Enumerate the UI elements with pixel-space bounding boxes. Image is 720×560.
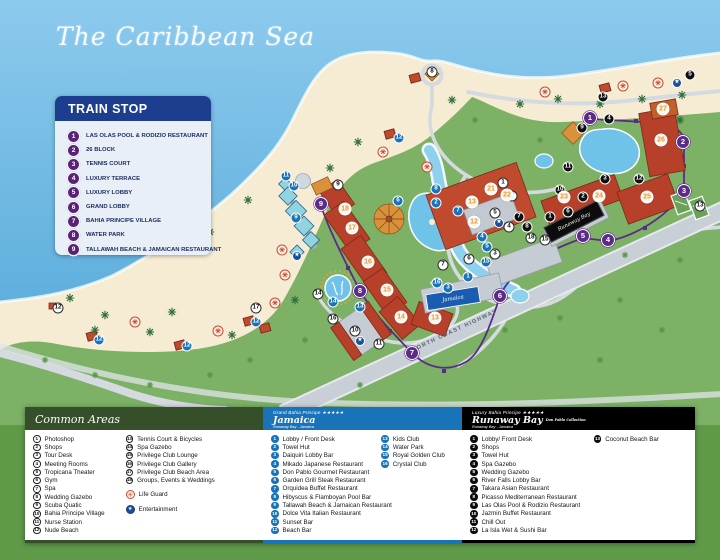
building-number-marker: 18: [339, 203, 352, 216]
legend-item: 9Las Olas Pool & Rodizio Restaurant: [470, 501, 594, 509]
legend-item-number: 8: [33, 493, 41, 501]
legend-item: 5Tropicana Theater: [33, 468, 126, 476]
legend-item-number: 8: [271, 493, 279, 501]
runaway-bay-footer-strip: [462, 540, 695, 543]
legend-item: 4Mikado Japanese Restaurant: [271, 460, 381, 468]
jamaica-marker: 7: [453, 206, 464, 217]
legend-item-label: Las Olas Pool & Rodizio Restaurant: [482, 502, 581, 509]
train-stop-marker: 6: [493, 289, 507, 303]
train-stop-marker: 7: [405, 346, 419, 360]
entertainment-icon: ★: [126, 505, 135, 514]
legend-item-number: 12: [470, 527, 478, 535]
jamaica-header: Grand Bahia Principe ★★★★★ Jamaica Runaw…: [263, 407, 462, 430]
jamaica-marker: 13: [355, 302, 366, 313]
legend-item: 5Don Pablo Gourmet Restaurant: [271, 468, 381, 476]
legend-item: 8Picasso Mediterranean Restaurant: [470, 493, 594, 501]
legend-item: 15Privilege Club Lounge: [126, 452, 259, 460]
legend-item: 11Nurse Station: [33, 518, 126, 526]
jamaica-footer-strip: [263, 540, 462, 543]
legend-item-number: 10: [271, 510, 279, 518]
common-area-marker: 11: [374, 339, 385, 350]
life-guard-icon: ✳: [130, 317, 141, 328]
legend-item-label: Lobby/ Front Desk: [482, 436, 533, 443]
jamaica-marker: 12: [182, 341, 193, 352]
life-guard-icon: ✳: [213, 326, 224, 337]
legend-item-number: 12: [271, 527, 279, 535]
train-stop-marker: 5: [576, 229, 590, 243]
legend-item-number: 1: [33, 435, 41, 443]
legend-item-label: Nude Beach: [45, 527, 79, 534]
legend-item-number: 8: [470, 493, 478, 501]
common-area-marker: 5: [490, 208, 501, 219]
legend-item: 4Spa Gazebo: [470, 460, 594, 468]
jamaica-marker: 12: [394, 133, 405, 144]
legend-item: 6River Falls Lobby Bar: [470, 476, 594, 484]
common-area-marker: 6: [464, 254, 475, 265]
life-guard-icon: ✳: [653, 78, 664, 89]
legend-item: 13Coconut Beach Bar: [594, 435, 691, 443]
jamaica-marker: 9: [291, 213, 302, 224]
jamaica-marker: 1: [463, 272, 474, 283]
legend-item: 12La Isla Wet & Sushi Bar: [470, 526, 594, 534]
legend-item-entertainment: ★Entertainment: [126, 505, 259, 513]
legend-item: 1Photoshop: [33, 435, 126, 443]
legend-item-number: 11: [271, 518, 279, 526]
train-stop-item: 8WATER PARK: [67, 228, 205, 242]
legend-item-number: 5: [33, 469, 41, 477]
jamaica-marker: 11: [281, 171, 292, 182]
legend-item-number: 6: [33, 477, 41, 485]
legend-item-number: 3: [470, 452, 478, 460]
jamaica-name: Jamaica: [273, 416, 462, 426]
building-number-marker: 24: [593, 190, 606, 203]
legend-section-jamaica: Grand Bahia Principe ★★★★★ Jamaica Runaw…: [263, 407, 462, 543]
legend-item-label: Tallawah Beach & Jamaican Restaurant: [283, 502, 392, 509]
legend-item: 4Meeting Rooms: [33, 460, 126, 468]
runaway-bay-marker: 2: [578, 192, 589, 203]
legend-item-label: Orquidea Buffet Restaurant: [283, 485, 358, 492]
jamaica-marker: 12: [94, 335, 105, 346]
runaway-bay-marker: 5: [685, 70, 696, 81]
legend-item-label: Privilege Club Gallery: [137, 461, 197, 468]
legend-item: 9Scuba Quatic: [33, 501, 126, 509]
legend-item-number: 15: [126, 452, 134, 460]
legend-item-number: 6: [271, 477, 279, 485]
train-stop-legend: TRAIN STOP 1LAS OLAS POOL & RODIZIO REST…: [55, 96, 211, 255]
legend-item-number: 2: [271, 444, 279, 452]
life-guard-icon: ✳: [277, 245, 288, 256]
legend-item-number: 4: [271, 460, 279, 468]
legend-item-label: Takara Asian Restaurant: [482, 485, 549, 492]
train-stop-number: 5: [67, 186, 80, 199]
building-number-marker: 14: [395, 311, 408, 324]
legend-item: 10Dolce Vita Italian Restaurant: [271, 510, 381, 518]
legend-item: 2Towel Hut: [271, 443, 381, 451]
legend-section-common-areas: Common Areas 1Photoshop2Shops3Tour Desk4…: [25, 407, 263, 543]
train-stop-label: TENNIS COURT: [86, 161, 130, 167]
train-stop-label: 26 BLOCK: [86, 147, 115, 153]
legend-item-label: Wedding Gazebo: [45, 494, 93, 501]
legend-item: 3Tour Desk: [33, 452, 126, 460]
legend-item-number: 18: [126, 477, 134, 485]
runaway-bay-marker: 6: [563, 207, 574, 218]
building-number-marker: 21: [485, 183, 498, 196]
legend-item-label: Daiquiri Lobby Bar: [283, 452, 334, 459]
legend-item-number: 4: [470, 460, 478, 468]
legend-item-number: 10: [470, 510, 478, 518]
legend-item: 5Wedding Gazebo: [470, 468, 594, 476]
life-guard-icon: ✳: [378, 147, 389, 158]
runaway-bay-marker: 13: [598, 92, 609, 103]
entertainment-icon: ★: [672, 78, 682, 88]
runaway-bay-marker: 11: [563, 162, 574, 173]
legend-item: 6Gym: [33, 476, 126, 484]
legend-item-number: 11: [470, 518, 478, 526]
legend-item-number: 1: [470, 435, 478, 443]
building-number-marker: 13: [466, 196, 479, 209]
legend-item-label: Privilege Club Beach Area: [137, 469, 209, 476]
entertainment-icon: ★: [494, 218, 504, 228]
legend-item: 8Hibyscus & Flamboyan Pool Bar: [271, 493, 381, 501]
train-stop-items: 1LAS OLAS POOL & RODIZIO RESTAURANT226 B…: [55, 121, 211, 257]
legend-item: 15Royal Golden Club: [381, 452, 458, 460]
jamaica-marker: 16: [432, 278, 443, 289]
train-stop-label: BAHIA PRINCIPE VILLAGE: [86, 218, 161, 224]
common-area-marker: 17: [251, 303, 262, 314]
legend-item-number: 2: [470, 444, 478, 452]
life-guard-icon: ✳: [270, 298, 281, 309]
common-area-marker: 15: [540, 235, 551, 246]
legend-item-number: 13: [126, 435, 134, 443]
train-stop-item: 5LUXURY LOBBY: [67, 186, 205, 200]
legend-item-number: 11: [33, 518, 41, 526]
legend-item: 12Beach Bar: [271, 526, 381, 534]
legend-item-number: 7: [271, 485, 279, 493]
common-area-marker: 7: [438, 260, 449, 271]
legend-item-label: Groups, Events & Weddings: [137, 477, 215, 484]
legend-item-label: Tropicana Theater: [45, 469, 95, 476]
legend-item-label: Tour Desk: [45, 452, 73, 459]
building-number-marker: 27: [657, 103, 670, 116]
runaway-bay-marker: 3: [600, 174, 611, 185]
train-stop-label: LAS OLAS POOL & RODIZIO RESTAURANT: [86, 133, 208, 139]
legend-item-number: 6: [470, 477, 478, 485]
legend-item: 2Shops: [470, 443, 594, 451]
legend-item: 13Kids Club: [381, 435, 458, 443]
common-area-marker: 18: [526, 233, 537, 244]
legend-item: 8Wedding Gazebo: [33, 493, 126, 501]
runaway-bay-marker: 7: [514, 212, 525, 223]
legend-item-label: Photoshop: [45, 436, 75, 443]
legend-item-label: Entertainment: [139, 506, 178, 513]
legend-item-number: 10: [33, 510, 41, 518]
legend-item: 7Orquidea Buffet Restaurant: [271, 485, 381, 493]
resort-map-page: The Caribbean Sea NORTH COAST HIGHWAY Ru…: [0, 0, 720, 560]
legend-item-number: 9: [271, 502, 279, 510]
legend-item: 11Sunset Bar: [271, 518, 381, 526]
legend-item-label: Sunset Bar: [283, 519, 314, 526]
common-area-marker: 4: [504, 222, 515, 233]
train-stop-number: 4: [67, 172, 80, 185]
legend-item-number: 12: [33, 527, 41, 535]
train-stop-number: 6: [67, 201, 80, 214]
runaway-bay-marker: 4: [604, 114, 615, 125]
legend-item: 10Jazmin Buffet Restaurant: [470, 510, 594, 518]
train-stop-item: 9TALLAWAH BEACH & JAMAICAN RESTAURANT: [67, 243, 205, 257]
legend-item-label: Mikado Japanese Restaurant: [283, 461, 364, 468]
common-area-marker: 12: [53, 303, 64, 314]
legend-item-label: Gym: [45, 477, 58, 484]
legend-item-label: Tennis Court & Bicycles: [137, 436, 202, 443]
runaway-bay-collection: Don Pablo Collection: [546, 418, 586, 422]
building-number-marker: 13: [429, 312, 442, 325]
common-area-marker: 3: [490, 249, 501, 260]
life-guard-icon: ✳: [126, 490, 135, 499]
legend-item-label: Jazmin Buffet Restaurant: [482, 510, 551, 517]
building-number-marker: 22: [501, 189, 514, 202]
legend-item: 6Garden Grill Steak Restaurant: [271, 476, 381, 484]
train-stop-number: 1: [67, 130, 80, 143]
legend-item-number: 9: [33, 502, 41, 510]
building-number-marker: 26: [655, 134, 668, 147]
legend-item-label: Coconut Beach Bar: [605, 436, 659, 443]
train-stop-item: 7BAHIA PRINCIPE VILLAGE: [67, 214, 205, 228]
common-areas-col1: 1Photoshop2Shops3Tour Desk4Meeting Rooms…: [33, 435, 126, 538]
jamaica-marker: 8: [431, 184, 442, 195]
train-stop-label: LUXURY LOBBY: [86, 190, 132, 196]
train-stop-item: 1LAS OLAS POOL & RODIZIO RESTAURANT: [67, 129, 205, 143]
runaway-bay-location: Runaway Bay - Jamaica: [472, 425, 695, 429]
jamaica-col1: 1Lobby / Front Desk2Towel Hut3Daiquiri L…: [271, 435, 381, 538]
legend-item-label: Life Guard: [139, 491, 168, 498]
building-number-marker: 25: [641, 191, 654, 204]
runaway-bay-col2: 13Coconut Beach Bar: [594, 435, 691, 538]
common-area-marker: 1: [498, 178, 509, 189]
common-areas-footer-strip: [25, 540, 263, 543]
train-stop-label: TALLAWAH BEACH & JAMAICAN RESTAURANT: [86, 247, 221, 253]
legend-item-label: Beach Bar: [283, 527, 312, 534]
building-number-marker: 16: [362, 256, 375, 269]
train-stop-item: 4LUXURY TERRACE: [67, 172, 205, 186]
legend-item-number: 16: [126, 460, 134, 468]
common-area-marker: 16: [328, 314, 339, 325]
legend-item: 1Lobby / Front Desk: [271, 435, 381, 443]
legend-item-number: 9: [470, 502, 478, 510]
common-areas-title: Common Areas: [35, 413, 263, 426]
legend-item: 16Privilege Club Gallery: [126, 460, 259, 468]
train-stop-label: GRAND LOBBY: [86, 204, 130, 210]
runaway-bay-marker: 8: [522, 222, 533, 233]
runaway-bay-marker: 9: [577, 123, 588, 134]
legend-item-number: 7: [33, 485, 41, 493]
train-stop-title: TRAIN STOP: [55, 96, 211, 121]
runaway-bay-col1: 1Lobby/ Front Desk2Shops3Towel Hut4Spa G…: [470, 435, 594, 538]
legend-item-label: Royal Golden Club: [393, 452, 445, 459]
legend-item: 16Crystal Club: [381, 460, 458, 468]
legend-item-number: 13: [381, 435, 389, 443]
legend-item-number: 4: [33, 460, 41, 468]
jamaica-marker: 2: [431, 198, 442, 209]
train-stop-item: 3TENNIS COURT: [67, 157, 205, 171]
legend-item-label: Kids Club: [393, 436, 419, 443]
legend-item-number: 2: [33, 444, 41, 452]
jamaica-marker: 3: [443, 283, 454, 294]
jamaica-marker: 12: [251, 317, 262, 328]
legend-item-label: Meeting Rooms: [45, 461, 88, 468]
legend-item: 13Tennis Court & Bicycles: [126, 435, 259, 443]
life-guard-icon: ✳: [540, 87, 551, 98]
legend-item-life-guard: ✳Life Guard: [126, 491, 259, 499]
runaway-bay-name: Runaway BayDon Pablo Collection: [472, 416, 695, 426]
legend-item: 18Groups, Events & Weddings: [126, 476, 259, 484]
legend-item-number: 15: [381, 452, 389, 460]
building-number-marker: 15: [381, 284, 394, 297]
legend-item: 14Spa Gazebo: [126, 443, 259, 451]
common-area-marker: 14: [313, 289, 324, 300]
jamaica-marker: 6: [393, 196, 404, 207]
legend-item-label: Privilege Club Lounge: [137, 452, 198, 459]
legend-item-label: Spa Gazebo: [137, 444, 171, 451]
legend-item-label: Scuba Quatic: [45, 502, 82, 509]
common-area-marker: 9: [333, 180, 344, 191]
life-guard-icon: ✳: [618, 81, 629, 92]
legend-item-label: Bahia Principe Village: [45, 510, 105, 517]
legend-item-number: 16: [381, 460, 389, 468]
legend-item-number: 1: [271, 435, 279, 443]
life-guard-icon: ✳: [280, 270, 291, 281]
train-stop-label: LUXURY TERRACE: [86, 176, 140, 182]
legend-item-number: 7: [470, 485, 478, 493]
legend-item: 12Nude Beach: [33, 526, 126, 534]
train-stop-marker: 4: [601, 233, 615, 247]
legend-item-number: 14: [126, 444, 134, 452]
legend-item-label: Lobby / Front Desk: [283, 436, 335, 443]
building-number-marker: 17: [346, 222, 359, 235]
legend-item-label: Shops: [482, 444, 500, 451]
legend-item: 3Daiquiri Lobby Bar: [271, 452, 381, 460]
legend-item: 14Water Park: [381, 443, 458, 451]
legend-item-number: 3: [271, 452, 279, 460]
common-areas-col2: 13Tennis Court & Bicycles14Spa Gazebo15P…: [126, 435, 259, 538]
legend-item-label: Don Pablo Gourmet Restaurant: [283, 469, 370, 476]
train-stop-item: 6GRAND LOBBY: [67, 200, 205, 214]
legend-item-label: La Isla Wet & Sushi Bar: [482, 527, 547, 534]
legend-item-number: 5: [470, 469, 478, 477]
legend-item-label: Hibyscus & Flamboyan Pool Bar: [283, 494, 372, 501]
legend-item: 2Shops: [33, 443, 126, 451]
common-area-marker: 13: [695, 201, 706, 212]
legend-item: 3Towel Hut: [470, 452, 594, 460]
common-areas-header: Common Areas: [25, 407, 263, 430]
legend-item: 1Lobby/ Front Desk: [470, 435, 594, 443]
train-stop-item: 226 BLOCK: [67, 143, 205, 157]
train-stop-number: 9: [67, 243, 80, 256]
legend-item-label: Towel Hut: [283, 444, 310, 451]
train-stop-marker: 3: [677, 184, 691, 198]
legend-item-label: Chill Out: [482, 519, 506, 526]
legend-item-number: 17: [126, 469, 134, 477]
legend-item-label: Crystal Club: [393, 461, 427, 468]
runaway-bay-marker: 12: [634, 174, 645, 185]
runaway-bay-header: Luxury Bahia Principe ★★★★★ Runaway BayD…: [462, 407, 695, 430]
legend-item-label: Water Park: [393, 444, 424, 451]
legend-item-label: Spa: [45, 485, 56, 492]
building-number-marker: 23: [558, 191, 571, 204]
legend-item-number: 3: [33, 452, 41, 460]
train-stop-marker: 2: [676, 135, 690, 149]
train-stop-number: 2: [67, 144, 80, 157]
legend-item-label: Shops: [45, 444, 63, 451]
legend-item-label: Dolce Vita Italian Restaurant: [283, 510, 361, 517]
life-guard-icon: ✳: [422, 162, 433, 173]
jamaica-marker: 15: [481, 257, 492, 268]
train-stop-label: WATER PARK: [86, 232, 125, 238]
runaway-bay-marker: 1: [545, 212, 556, 223]
legend-item: 17Privilege Club Beach Area: [126, 468, 259, 476]
jamaica-location: Runaway Bay - Jamaica: [273, 425, 462, 429]
jamaica-marker: 10: [289, 181, 300, 192]
legend-item: 10Bahia Principe Village: [33, 510, 126, 518]
train-stop-marker: 9: [314, 197, 328, 211]
legend-item-label: Nurse Station: [45, 519, 83, 526]
train-stop-number: 7: [67, 215, 80, 228]
legend-item-label: Garden Grill Steak Restaurant: [283, 477, 366, 484]
legend-panel: Common Areas 1Photoshop2Shops3Tour Desk4…: [25, 407, 695, 543]
legend-item-label: Spa Gazebo: [482, 461, 516, 468]
legend-item-number: 5: [271, 469, 279, 477]
legend-section-runaway-bay: Luxury Bahia Principe ★★★★★ Runaway BayD…: [462, 407, 695, 543]
legend-item: 7Takara Asian Restaurant: [470, 485, 594, 493]
legend-item-number: 13: [594, 435, 602, 443]
legend-item-label: Picasso Mediterranean Restaurant: [482, 494, 577, 501]
legend-item: 11Chill Out: [470, 518, 594, 526]
entertainment-icon: ★: [355, 336, 365, 346]
legend-item: 9Tallawah Beach & Jamaican Restaurant: [271, 501, 381, 509]
common-area-marker: 8: [427, 67, 438, 78]
train-stop-marker: 8: [353, 284, 367, 298]
train-stop-number: 8: [67, 229, 80, 242]
legend-item-label: Wedding Gazebo: [482, 469, 530, 476]
legend-item-label: Towel Hut: [482, 452, 509, 459]
legend-item-label: River Falls Lobby Bar: [482, 477, 541, 484]
legend-item-number: 14: [381, 444, 389, 452]
building-number-marker: 12: [468, 216, 481, 229]
legend-item: 7Spa: [33, 485, 126, 493]
jamaica-col2: 13Kids Club14Water Park15Royal Golden Cl…: [381, 435, 458, 538]
jamaica-marker: 14: [328, 297, 339, 308]
train-stop-number: 3: [67, 158, 80, 171]
common-area-marker: 10: [350, 326, 361, 337]
entertainment-icon: ★: [292, 251, 302, 261]
